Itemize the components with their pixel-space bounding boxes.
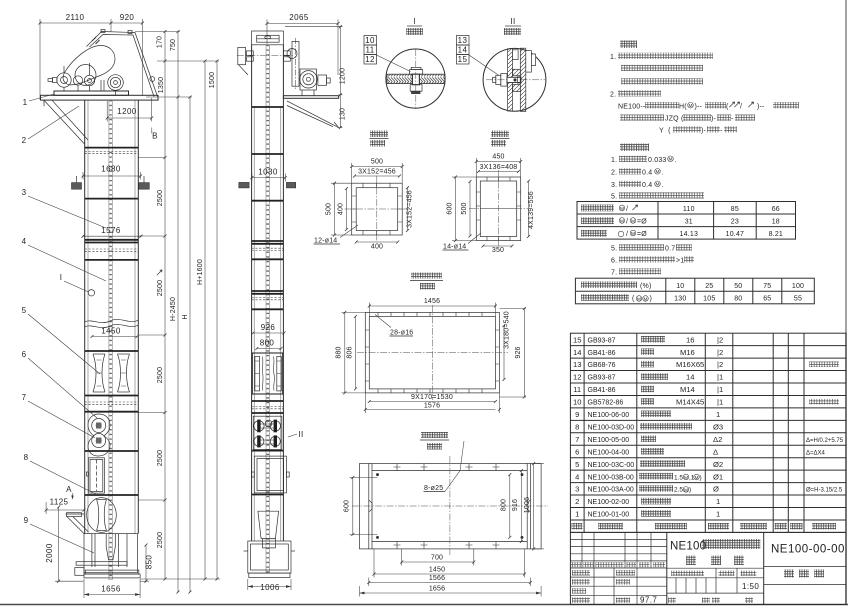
svg-text:Δ2: Δ2 xyxy=(713,435,722,444)
svg-text:): ) xyxy=(700,474,702,481)
svg-text:110: 110 xyxy=(683,206,695,213)
svg-text:NE100-03D-00: NE100-03D-00 xyxy=(588,425,635,432)
svg-text:13: 13 xyxy=(458,36,468,45)
svg-text:NE100-04-00: NE100-04-00 xyxy=(588,449,630,456)
svg-text:5.: 5. xyxy=(611,194,617,201)
svg-text:3: 3 xyxy=(22,188,27,197)
svg-text:1500: 1500 xyxy=(209,72,216,88)
svg-text:1: 1 xyxy=(23,98,28,107)
svg-text:2500: 2500 xyxy=(157,532,164,548)
svg-text:450: 450 xyxy=(492,154,504,161)
svg-text:A: A xyxy=(66,485,72,494)
svg-text:M14X45: M14X45 xyxy=(676,398,704,407)
svg-text:NE100-03A-00: NE100-03A-00 xyxy=(588,487,634,494)
svg-text:1006: 1006 xyxy=(524,497,531,513)
svg-text:10: 10 xyxy=(573,398,581,407)
svg-text:15: 15 xyxy=(458,55,468,64)
svg-text:Y (: Y ( xyxy=(659,128,671,135)
svg-text:M16: M16 xyxy=(680,348,695,357)
svg-text:65: 65 xyxy=(763,296,771,303)
svg-text:500: 500 xyxy=(326,203,333,215)
svg-text:.: . xyxy=(662,182,664,189)
svg-text:170: 170 xyxy=(157,36,164,48)
svg-text:750: 750 xyxy=(170,39,177,51)
svg-text:/: / xyxy=(626,206,628,213)
svg-text:800: 800 xyxy=(501,499,508,511)
svg-text:9X170=1530: 9X170=1530 xyxy=(411,394,453,401)
svg-text:13: 13 xyxy=(573,360,581,369)
svg-text:800: 800 xyxy=(260,339,275,348)
svg-text:GB93-87: GB93-87 xyxy=(588,375,616,382)
svg-text:12-ø14: 12-ø14 xyxy=(314,238,337,245)
svg-text:|2: |2 xyxy=(717,348,723,357)
svg-text:700: 700 xyxy=(431,555,443,562)
svg-text:GB93-87: GB93-87 xyxy=(588,337,616,344)
svg-text:H: H xyxy=(182,314,189,319)
svg-text:GB41-86: GB41-86 xyxy=(588,350,616,357)
svg-text:12: 12 xyxy=(365,55,375,64)
svg-text:97.7: 97.7 xyxy=(640,596,657,605)
svg-text:.: . xyxy=(662,170,664,177)
svg-text:66: 66 xyxy=(772,206,780,213)
svg-text:80: 80 xyxy=(734,296,742,303)
svg-text:100: 100 xyxy=(792,283,804,290)
svg-text:Δ=ΔX4: Δ=ΔX4 xyxy=(806,450,826,456)
svg-text:H+1600: H+1600 xyxy=(197,259,204,285)
svg-text:12: 12 xyxy=(573,373,581,382)
svg-text:1656: 1656 xyxy=(429,586,445,593)
svg-text:)-: )- xyxy=(711,116,717,123)
svg-text:)-: )- xyxy=(701,128,707,135)
svg-text:2500: 2500 xyxy=(157,280,164,296)
svg-text:8.21: 8.21 xyxy=(769,231,783,238)
svg-text:1450: 1450 xyxy=(429,567,445,574)
svg-text:3X136=408: 3X136=408 xyxy=(480,164,518,171)
svg-text:11: 11 xyxy=(365,46,374,55)
svg-text:H(: H( xyxy=(679,104,687,111)
svg-text:25: 25 xyxy=(705,283,713,290)
svg-text:GB5782-86: GB5782-86 xyxy=(588,400,624,407)
svg-text:10.47: 10.47 xyxy=(726,231,745,238)
svg-text:1: 1 xyxy=(575,510,579,519)
svg-text:II: II xyxy=(298,430,303,439)
svg-text:1: 1 xyxy=(716,510,720,519)
svg-text:1006: 1006 xyxy=(260,583,280,592)
svg-text:7: 7 xyxy=(22,393,27,402)
svg-text:1200: 1200 xyxy=(117,107,137,116)
svg-text:2500: 2500 xyxy=(157,450,164,466)
svg-text:880: 880 xyxy=(336,346,343,358)
svg-text:M14: M14 xyxy=(680,385,695,394)
svg-text:8: 8 xyxy=(575,423,579,432)
svg-text:Δ=H/0.2+5.75: Δ=H/0.2+5.75 xyxy=(806,438,844,444)
svg-text:/: / xyxy=(626,219,628,226)
svg-text:II: II xyxy=(510,17,515,26)
svg-text:.: . xyxy=(675,157,677,164)
svg-text:/: / xyxy=(740,104,742,111)
svg-text:50: 50 xyxy=(734,283,742,290)
svg-text:14-ø14: 14-ø14 xyxy=(443,244,466,251)
svg-text:2500: 2500 xyxy=(157,367,164,383)
svg-text:I: I xyxy=(413,17,416,26)
svg-text:Ø1: Ø1 xyxy=(713,472,723,481)
svg-text:Ø3: Ø3 xyxy=(713,423,723,432)
svg-text:1:50: 1:50 xyxy=(742,582,759,591)
svg-text:5.: 5. xyxy=(611,246,617,253)
svg-text:14: 14 xyxy=(686,373,694,382)
svg-text:7.: 7. xyxy=(611,270,617,277)
svg-text:3X152=456: 3X152=456 xyxy=(358,169,396,176)
svg-text:400: 400 xyxy=(371,244,383,251)
svg-text:350: 350 xyxy=(492,247,504,254)
svg-text:16: 16 xyxy=(686,335,694,344)
svg-text:4X139=556: 4X139=556 xyxy=(528,191,535,229)
svg-text:600: 600 xyxy=(344,500,351,512)
svg-text:H-2450: H-2450 xyxy=(170,297,177,321)
svg-text:2.: 2. xyxy=(610,92,616,99)
svg-text:NE100-05-00: NE100-05-00 xyxy=(588,437,630,444)
svg-text:916: 916 xyxy=(512,499,519,511)
svg-text:|1: |1 xyxy=(717,373,723,382)
svg-text:)--: )-- xyxy=(695,104,703,111)
svg-text:|1: |1 xyxy=(717,385,723,394)
svg-text:1.5: 1.5 xyxy=(674,474,683,481)
svg-text:8: 8 xyxy=(24,453,29,462)
svg-text:0.7: 0.7 xyxy=(665,246,675,253)
svg-text:NE100-01-00: NE100-01-00 xyxy=(588,512,630,519)
svg-text:5: 5 xyxy=(22,306,27,315)
svg-text:18: 18 xyxy=(772,219,780,226)
svg-text:85: 85 xyxy=(731,206,739,213)
svg-text:0.4: 0.4 xyxy=(642,170,652,177)
svg-text:14.13: 14.13 xyxy=(680,231,699,238)
svg-text:2500: 2500 xyxy=(157,190,164,206)
svg-text:)--: )-- xyxy=(757,104,765,111)
svg-text:0.033: 0.033 xyxy=(648,157,667,164)
svg-text:55: 55 xyxy=(794,296,802,303)
svg-text:2065: 2065 xyxy=(289,13,309,22)
svg-text:75: 75 xyxy=(763,283,771,290)
svg-text:1.: 1. xyxy=(610,54,616,61)
svg-text:920: 920 xyxy=(120,13,135,22)
svg-text:GB68-76: GB68-76 xyxy=(588,362,616,369)
svg-text:Ø: Ø xyxy=(713,485,719,494)
svg-text:1030: 1030 xyxy=(258,168,278,177)
svg-text:): ) xyxy=(689,487,691,494)
svg-text:1450: 1450 xyxy=(101,327,121,336)
svg-text:10: 10 xyxy=(676,283,684,290)
svg-text:NE100--: NE100-- xyxy=(618,104,646,111)
svg-text:3: 3 xyxy=(575,485,579,494)
svg-text:6: 6 xyxy=(22,350,27,359)
svg-text:1656: 1656 xyxy=(101,585,121,594)
svg-text:1: 1 xyxy=(716,410,720,419)
svg-text:926: 926 xyxy=(261,323,276,332)
svg-text:1456: 1456 xyxy=(424,298,440,305)
svg-text:105: 105 xyxy=(703,296,715,303)
svg-text:8-ø25: 8-ø25 xyxy=(424,485,443,492)
svg-text:): ) xyxy=(650,296,653,303)
svg-text:1576: 1576 xyxy=(424,403,440,410)
svg-text:(%): (%) xyxy=(640,283,652,290)
svg-text:2: 2 xyxy=(22,136,27,145)
svg-text:14: 14 xyxy=(573,348,581,357)
svg-text:GB41-86: GB41-86 xyxy=(588,387,616,394)
svg-text:Ø=H-3.15/2.5: Ø=H-3.15/2.5 xyxy=(806,488,843,494)
svg-text:NE100-02-00: NE100-02-00 xyxy=(588,499,630,506)
svg-text:15: 15 xyxy=(573,335,581,344)
svg-text:NE100-03B-00: NE100-03B-00 xyxy=(588,474,634,481)
svg-text:2.: 2. xyxy=(611,170,617,177)
svg-text:2110: 2110 xyxy=(66,13,85,22)
svg-text:B: B xyxy=(152,132,158,141)
svg-text:NE100-03C-00: NE100-03C-00 xyxy=(588,462,635,469)
svg-text:5: 5 xyxy=(575,460,579,469)
svg-text:|2: |2 xyxy=(717,335,723,344)
svg-text:500: 500 xyxy=(461,202,468,214)
svg-text:M16X65: M16X65 xyxy=(676,360,704,369)
svg-text:130: 130 xyxy=(674,296,686,303)
svg-text:3X180=540: 3X180=540 xyxy=(504,311,511,349)
svg-text:400: 400 xyxy=(338,203,345,215)
svg-text:=Ø: =Ø xyxy=(637,231,647,238)
svg-text:|1: |1 xyxy=(717,398,723,407)
svg-text:31: 31 xyxy=(685,219,693,226)
svg-text:4: 4 xyxy=(575,472,579,481)
svg-text:500: 500 xyxy=(371,159,383,166)
svg-text:/: / xyxy=(626,231,628,238)
svg-text:6: 6 xyxy=(575,447,579,456)
svg-text:NE100: NE100 xyxy=(670,541,706,553)
svg-text:1125: 1125 xyxy=(50,498,69,507)
svg-text:11: 11 xyxy=(573,385,581,394)
svg-text:28-ø16: 28-ø16 xyxy=(390,330,413,337)
svg-text:NE100-06-00: NE100-06-00 xyxy=(588,412,630,419)
svg-text:2: 2 xyxy=(575,497,579,506)
svg-text:2.5: 2.5 xyxy=(674,487,683,494)
svg-text:2000: 2000 xyxy=(45,543,54,563)
svg-text:10: 10 xyxy=(365,36,375,45)
svg-text:1.: 1. xyxy=(611,157,617,164)
svg-text:|2: |2 xyxy=(717,360,723,369)
svg-text:Δ: Δ xyxy=(713,447,718,456)
svg-text:1350: 1350 xyxy=(158,77,165,93)
svg-text:=Ø: =Ø xyxy=(637,219,647,226)
svg-text:4: 4 xyxy=(22,237,27,246)
svg-text:7: 7 xyxy=(575,435,579,444)
svg-text:I: I xyxy=(60,273,63,282)
svg-text:1566: 1566 xyxy=(429,575,445,582)
svg-text:806: 806 xyxy=(347,346,354,358)
svg-text:14: 14 xyxy=(458,46,468,55)
svg-text:9: 9 xyxy=(24,516,29,525)
svg-text:0.4: 0.4 xyxy=(642,182,652,189)
svg-text:3.: 3. xyxy=(611,182,617,189)
svg-text:NE100-00-00: NE100-00-00 xyxy=(771,544,845,556)
svg-text:>1: >1 xyxy=(676,258,684,265)
svg-text:6.: 6. xyxy=(611,258,617,265)
svg-text:600: 600 xyxy=(447,202,454,214)
svg-text:926: 926 xyxy=(515,346,522,358)
svg-text:JZQ (: JZQ ( xyxy=(665,116,684,123)
svg-text:9: 9 xyxy=(575,410,579,419)
svg-text:1680: 1680 xyxy=(101,165,121,174)
svg-text:1: 1 xyxy=(716,497,720,506)
svg-text:23: 23 xyxy=(731,219,739,226)
svg-text:Ø2: Ø2 xyxy=(713,460,723,469)
